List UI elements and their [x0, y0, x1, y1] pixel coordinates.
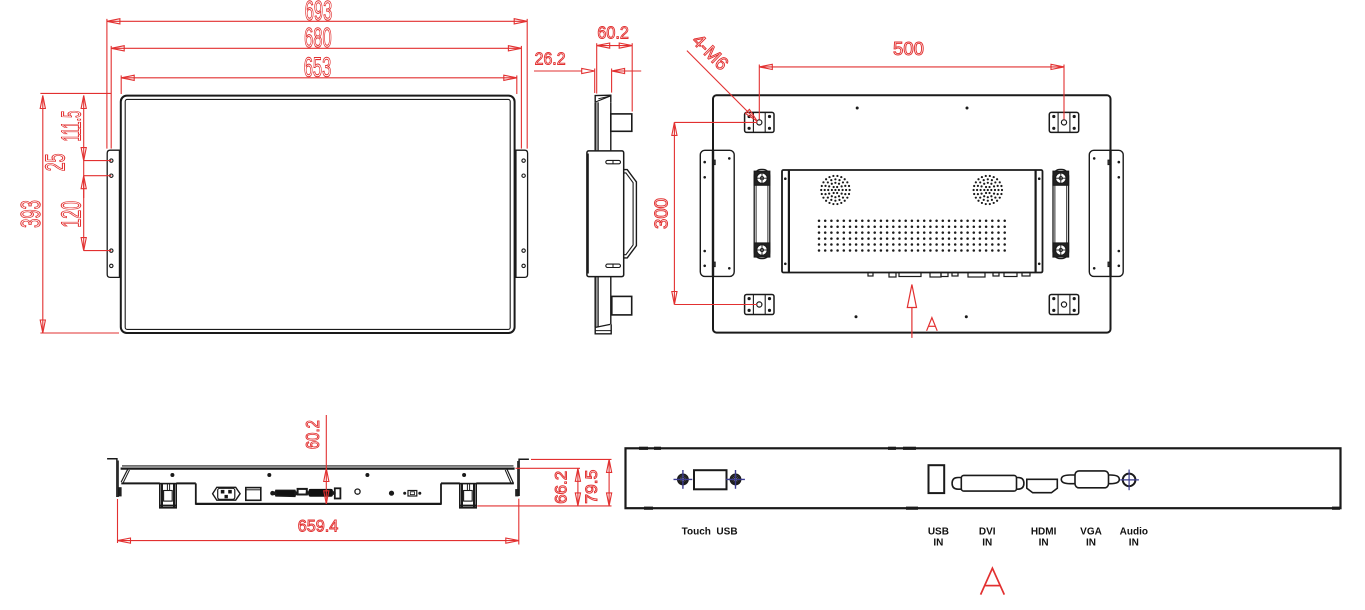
- svg-text:66.2: 66.2: [552, 471, 571, 504]
- svg-text:IN: IN: [1129, 538, 1139, 549]
- svg-text:79.5: 79.5: [582, 470, 601, 504]
- svg-text:IN: IN: [1039, 538, 1049, 549]
- svg-text:60.2: 60.2: [597, 23, 629, 43]
- svg-text:HDMI: HDMI: [1031, 527, 1057, 538]
- svg-text:500: 500: [893, 38, 924, 59]
- svg-text:USB: USB: [928, 527, 949, 538]
- svg-text:VGA: VGA: [1080, 527, 1102, 538]
- svg-text:393: 393: [15, 200, 46, 228]
- svg-text:120: 120: [55, 201, 86, 228]
- svg-text:653: 653: [304, 52, 332, 83]
- svg-text:60.2: 60.2: [302, 420, 323, 449]
- svg-text:Touch USB: Touch USB: [682, 527, 738, 538]
- svg-text:Audio: Audio: [1120, 527, 1148, 538]
- svg-text:300: 300: [650, 198, 671, 229]
- svg-text:680: 680: [304, 22, 332, 53]
- svg-text:IN: IN: [1086, 538, 1096, 549]
- svg-text:111.5: 111.5: [55, 111, 86, 142]
- svg-text:IN: IN: [982, 538, 992, 549]
- svg-text:25: 25: [40, 154, 71, 172]
- svg-text:DVI: DVI: [979, 527, 996, 538]
- svg-text:IN: IN: [933, 538, 943, 549]
- svg-text:659.4: 659.4: [298, 516, 339, 535]
- svg-text:26.2: 26.2: [535, 49, 566, 69]
